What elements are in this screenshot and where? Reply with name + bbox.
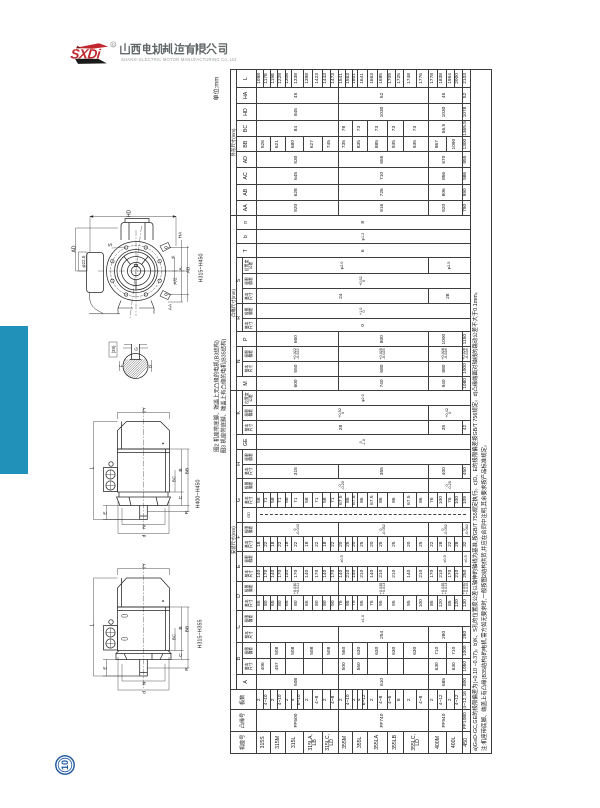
svg-text:图2 机座带底脚、端盖上无凸缘的电机(B3结构): 图2 机座带底脚、端盖上无凸缘的电机(B3结构) [213,340,221,452]
svg-text:H315~H450: H315~H450 [199,254,205,283]
svg-text:10: 10 [60,760,70,770]
svg-text:C: C [178,653,184,657]
svg-text:L: L [90,623,96,626]
svg-text:K: K [171,255,177,259]
svg-text:BC: BC [172,476,177,482]
svg-text:B: B [178,626,184,629]
svg-text:AA: AA [168,303,174,310]
svg-text:A: A [178,267,184,271]
svg-text:AD: AD [72,245,78,252]
svg-text:HD: HD [127,210,133,218]
svg-text:φ22.5: φ22.5 [81,255,86,267]
svg-text:BC: BC [172,634,177,640]
svg-text:E: E [103,666,109,669]
svg-text:R: R [184,510,190,514]
svg-text:d: d [142,534,148,537]
svg-text:JY: JY [142,406,148,412]
svg-text:d: d [142,691,148,694]
svg-text:L: L [90,466,96,469]
svg-text:SXDi: SXDi [70,47,102,62]
svg-text:F: F [119,364,124,367]
svg-text:N: N [142,681,148,685]
svg-text:E: E [103,511,109,514]
svg-text:G: G [134,347,139,351]
svg-text:AB: AB [186,267,192,273]
svg-text:C: C [178,495,184,499]
svg-text:N: N [142,525,148,529]
svg-text:S: S [108,243,114,247]
svg-text:(39): (39) [111,345,116,353]
svg-text:D: D [148,364,153,368]
svg-text:A/2: A/2 [173,277,179,285]
svg-text:R: R [112,42,115,47]
svg-text:H315~H355: H315~H355 [198,620,204,649]
svg-text:图3 机座带底脚、端盖上有凸缘的电机(B35结构): 图3 机座带底脚、端盖上有凸缘的电机(B35结构) [220,338,228,453]
svg-text:R: R [184,667,190,671]
svg-text:BB: BB [185,626,191,632]
svg-text:BB: BB [185,468,191,474]
svg-text:JY: JY [142,562,148,568]
svg-text:HA: HA [178,231,184,238]
svg-text:H400~H450: H400~H450 [196,480,202,509]
svg-text:B: B [178,468,184,471]
